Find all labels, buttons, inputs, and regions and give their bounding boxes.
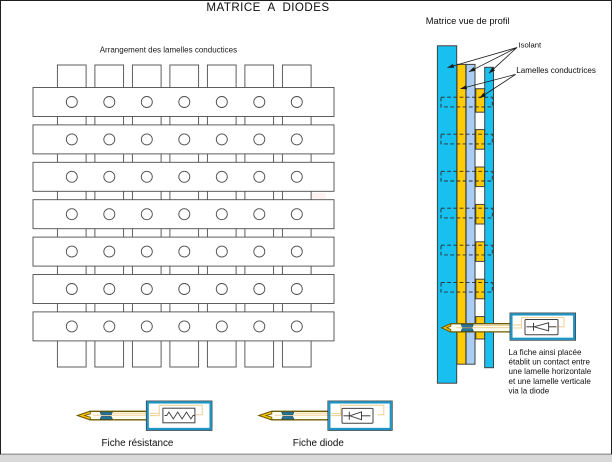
svg-text:Fiche résistance: Fiche résistance: [102, 438, 174, 449]
svg-text:Fiche diode: Fiche diode: [293, 438, 345, 449]
svg-text:Arrangement des lamelles condu: Arrangement des lamelles conductices: [100, 46, 237, 55]
svg-text:Lamelles conductrices: Lamelles conductrices: [516, 66, 596, 75]
svg-text:La fiche ainsi placée: La fiche ainsi placée: [509, 348, 582, 357]
svg-text:MATRICE A DIODES: MATRICE A DIODES: [206, 1, 329, 14]
svg-text:Matrice vue de profil: Matrice vue de profil: [426, 16, 510, 26]
svg-text:et une lamelle verticale: et une lamelle verticale: [509, 377, 592, 386]
svg-text:Isolant: Isolant: [519, 40, 543, 49]
svg-text:une lamelle horizontale: une lamelle horizontale: [509, 367, 592, 376]
svg-text:établit un contact entre: établit un contact entre: [509, 358, 591, 367]
svg-text:via la diode: via la diode: [509, 386, 550, 395]
